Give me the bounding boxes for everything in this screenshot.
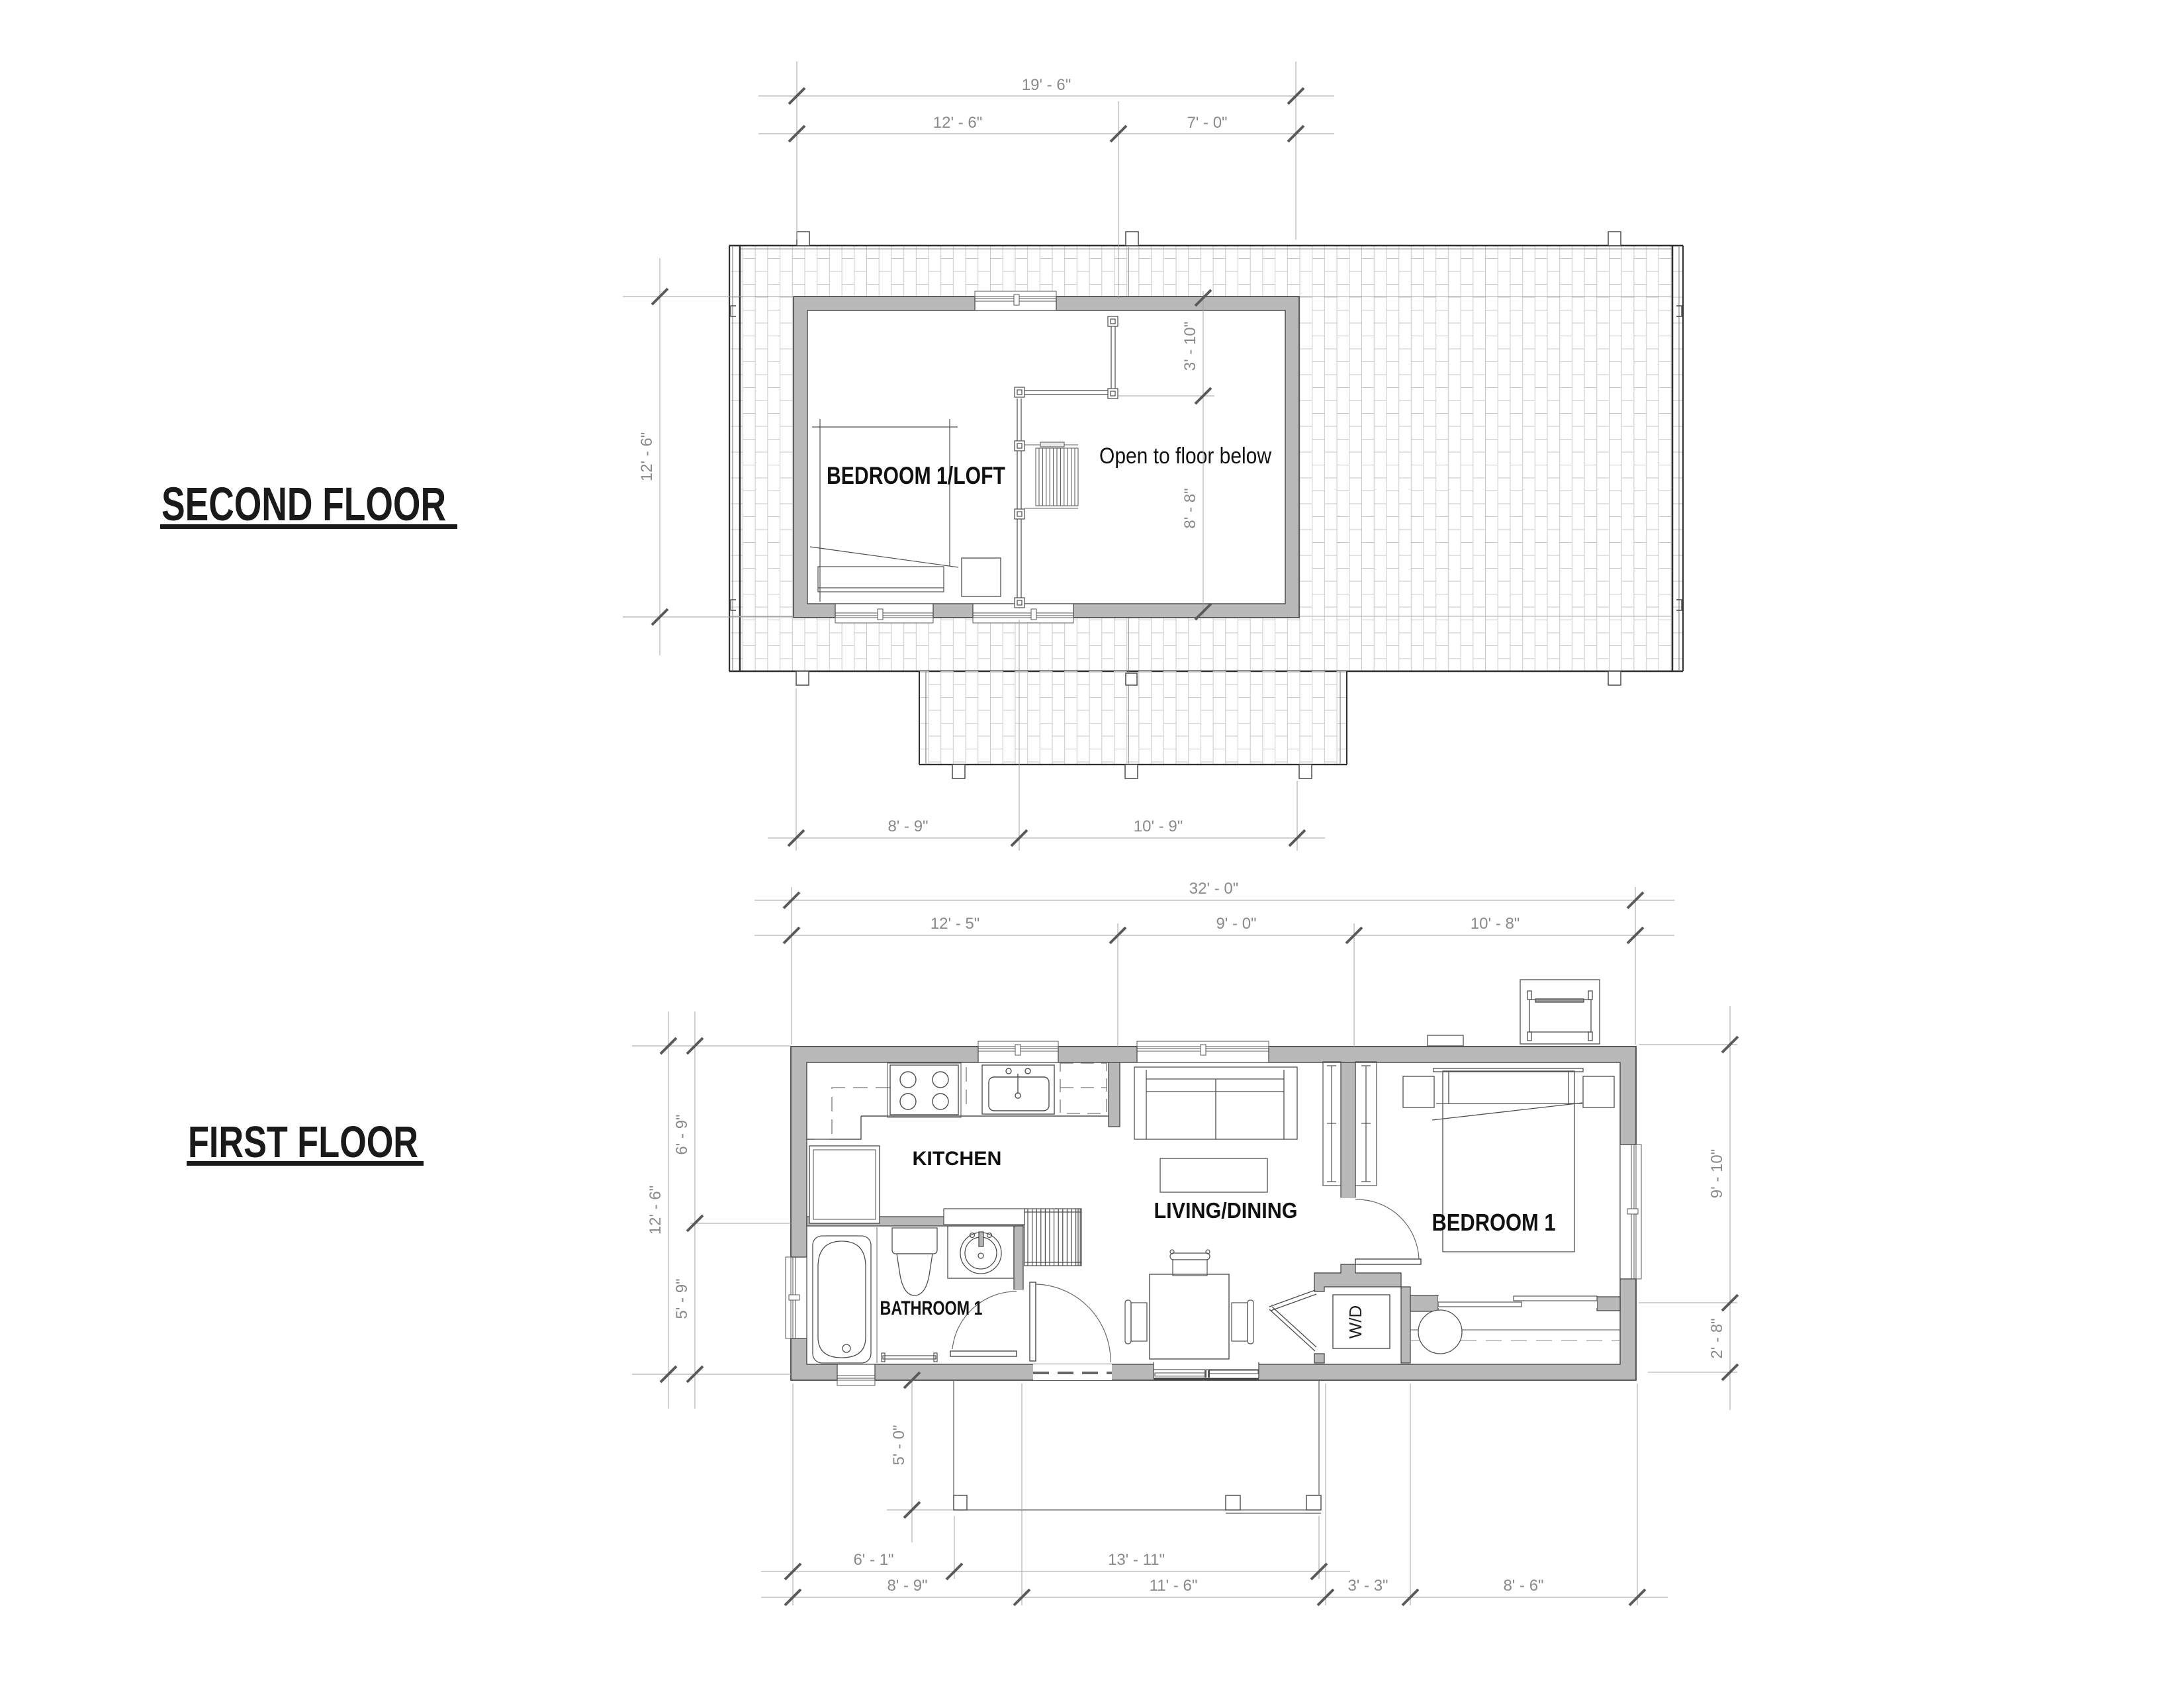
svg-text:8' - 9": 8' - 9": [887, 818, 928, 835]
svg-text:2' - 8": 2' - 8": [1708, 1318, 1726, 1358]
svg-text:12' - 6": 12' - 6": [933, 114, 982, 132]
svg-text:10' - 9": 10' - 9": [1134, 818, 1183, 835]
svg-text:19' - 6": 19' - 6": [1022, 76, 1071, 94]
svg-text:7' - 0": 7' - 0": [1187, 114, 1227, 132]
svg-text:12' - 5": 12' - 5": [931, 915, 979, 933]
svg-text:8' - 8": 8' - 8": [1181, 488, 1199, 528]
svg-text:10' - 8": 10' - 8": [1471, 915, 1520, 933]
svg-text:5' - 9": 5' - 9": [673, 1278, 691, 1319]
svg-text:12' - 6": 12' - 6": [638, 432, 656, 481]
svg-text:FIRST FLOOR: FIRST FLOOR: [188, 1117, 418, 1167]
svg-text:SECOND FLOOR: SECOND FLOOR: [161, 479, 446, 531]
svg-text:BEDROOM 1: BEDROOM 1: [1432, 1209, 1556, 1236]
svg-text:3' - 10": 3' - 10": [1181, 322, 1199, 371]
svg-text:32' - 0": 32' - 0": [1189, 880, 1238, 898]
svg-text:11' - 6": 11' - 6": [1150, 1577, 1198, 1595]
svg-text:5' - 0": 5' - 0": [890, 1425, 908, 1465]
svg-text:Open to floor below: Open to floor below: [1099, 444, 1271, 469]
svg-text:9' - 10": 9' - 10": [1708, 1149, 1726, 1198]
svg-text:LIVING/DINING: LIVING/DINING: [1154, 1198, 1298, 1223]
svg-text:BATHROOM 1: BATHROOM 1: [880, 1297, 983, 1319]
svg-text:6' - 1": 6' - 1": [853, 1551, 893, 1569]
svg-text:KITCHEN: KITCHEN: [913, 1148, 1002, 1170]
svg-text:12' - 6": 12' - 6": [647, 1186, 664, 1235]
svg-text:9' - 0": 9' - 0": [1216, 915, 1256, 933]
svg-text:6' - 9": 6' - 9": [673, 1114, 691, 1154]
svg-text:13' - 11": 13' - 11": [1108, 1551, 1165, 1569]
svg-text:BEDROOM 1/LOFT: BEDROOM 1/LOFT: [827, 462, 1005, 489]
svg-text:W/D: W/D: [1345, 1305, 1365, 1339]
svg-text:8' - 9": 8' - 9": [887, 1577, 927, 1595]
svg-text:3' - 3": 3' - 3": [1347, 1577, 1388, 1595]
svg-text:8' - 6": 8' - 6": [1503, 1577, 1543, 1595]
